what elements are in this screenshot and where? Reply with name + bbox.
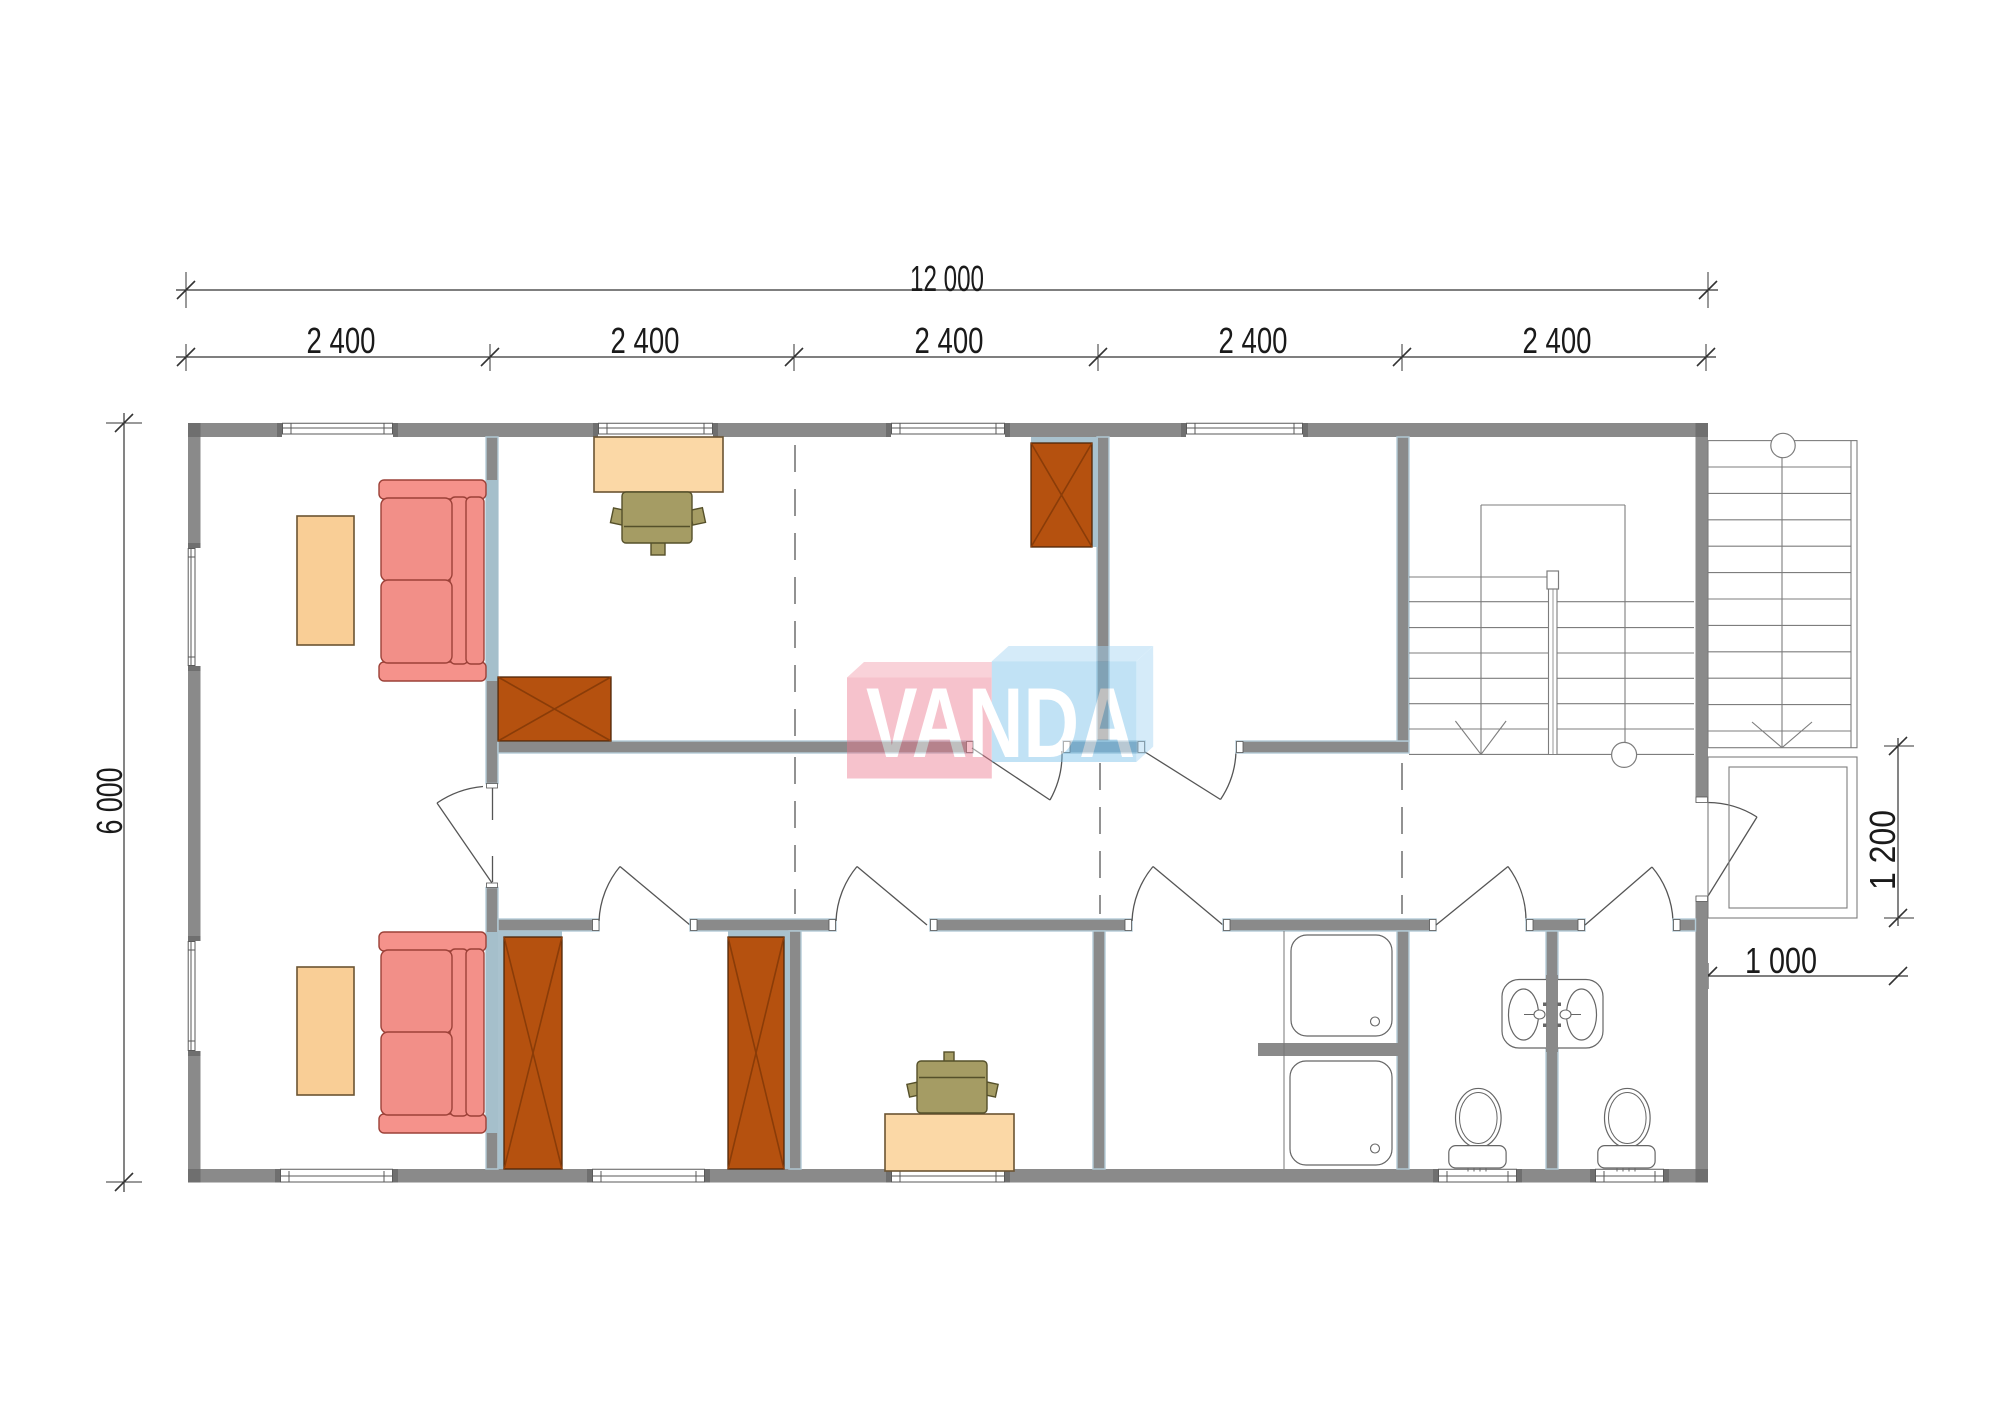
- svg-text:VANDA: VANDA: [866, 667, 1135, 778]
- svg-text:2 400: 2 400: [1523, 320, 1592, 361]
- svg-text:2 400: 2 400: [307, 320, 376, 361]
- svg-text:1 200: 1 200: [1862, 810, 1903, 890]
- svg-text:12 000: 12 000: [910, 258, 984, 299]
- svg-text:2 400: 2 400: [915, 320, 984, 361]
- svg-text:6 000: 6 000: [89, 768, 130, 835]
- svg-text:1 000: 1 000: [1745, 940, 1817, 981]
- svg-text:2 400: 2 400: [611, 320, 680, 361]
- svg-text:2 400: 2 400: [1219, 320, 1288, 361]
